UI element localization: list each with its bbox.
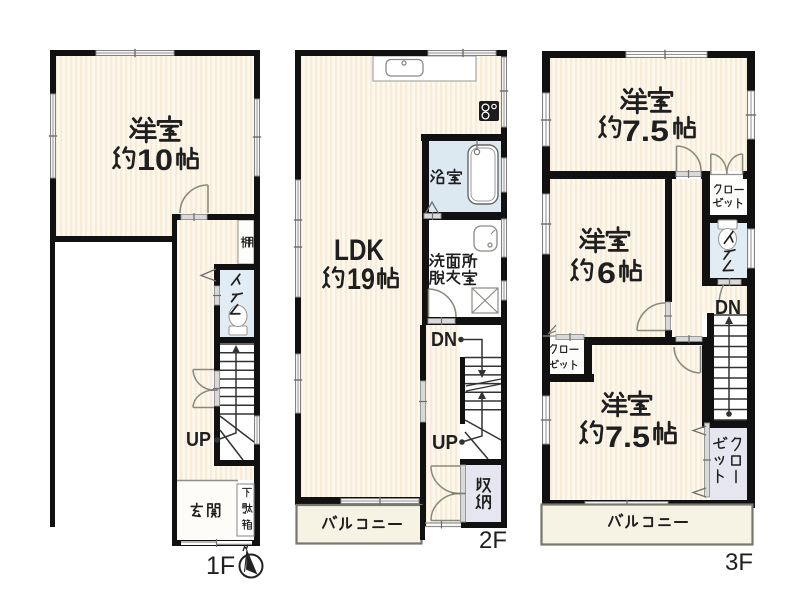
svg-text:3F: 3F bbox=[725, 549, 753, 576]
svg-text:19: 19 bbox=[347, 263, 375, 296]
svg-text:10: 10 bbox=[137, 144, 173, 177]
svg-text:UP: UP bbox=[432, 432, 458, 454]
svg-text:1F: 1F bbox=[206, 552, 235, 580]
svg-text:UP: UP bbox=[186, 429, 211, 451]
svg-text:2F: 2F bbox=[479, 527, 507, 554]
svg-text:7.5: 7.5 bbox=[622, 115, 669, 148]
svg-text:DN: DN bbox=[431, 329, 457, 351]
svg-text:7.5: 7.5 bbox=[605, 421, 650, 454]
svg-text:6: 6 bbox=[597, 257, 616, 290]
